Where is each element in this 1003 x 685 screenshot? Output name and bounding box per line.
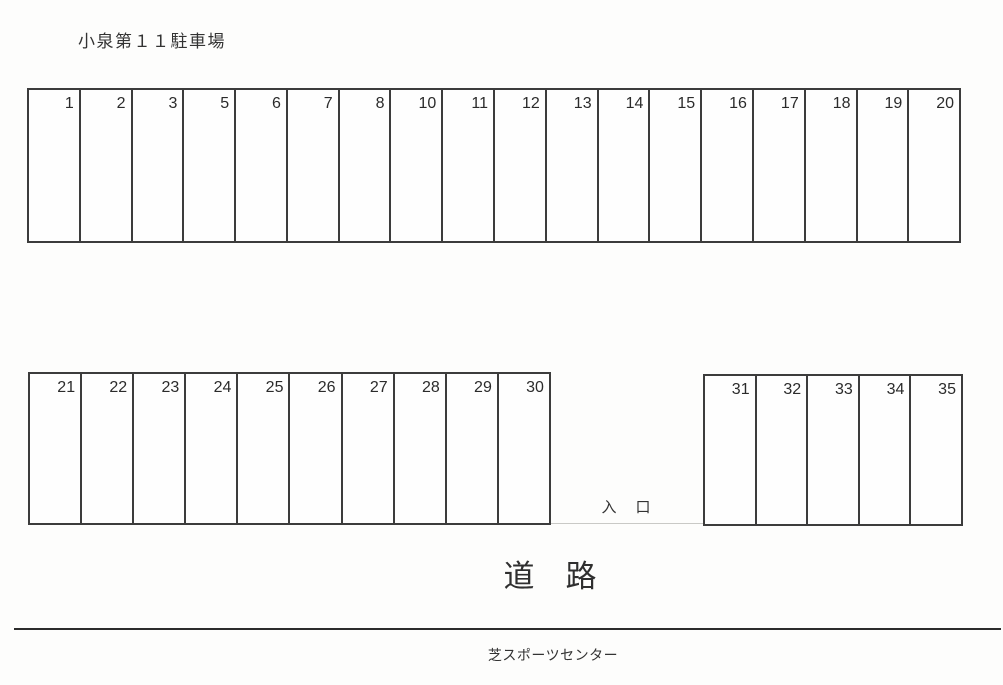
space-number: 13 xyxy=(574,94,592,113)
parking-space-14: 14 xyxy=(599,90,651,241)
parking-space-21: 21 xyxy=(30,374,82,523)
parking-space-32: 32 xyxy=(757,376,809,524)
parking-space-26: 26 xyxy=(290,374,342,523)
parking-space-2: 2 xyxy=(81,90,133,241)
parking-space-7: 7 xyxy=(288,90,340,241)
parking-space-24: 24 xyxy=(186,374,238,523)
space-number: 7 xyxy=(324,94,333,113)
parking-lot-diagram: 小泉第１１駐車場 12356781011121314151617181920 2… xyxy=(0,0,1003,685)
parking-space-11: 11 xyxy=(443,90,495,241)
parking-space-25: 25 xyxy=(238,374,290,523)
parking-space-12: 12 xyxy=(495,90,547,241)
parking-space-28: 28 xyxy=(395,374,447,523)
parking-space-35: 35 xyxy=(911,376,961,524)
space-number: 35 xyxy=(938,380,956,399)
space-number: 21 xyxy=(57,378,75,397)
parking-space-16: 16 xyxy=(702,90,754,241)
parking-space-17: 17 xyxy=(754,90,806,241)
space-number: 17 xyxy=(781,94,799,113)
space-number: 22 xyxy=(109,378,127,397)
space-number: 10 xyxy=(418,94,436,113)
space-number: 33 xyxy=(835,380,853,399)
road-boundary-line xyxy=(14,628,1001,630)
entrance-label: 入 口 xyxy=(551,496,703,517)
parking-space-13: 13 xyxy=(547,90,599,241)
lot-title: 小泉第１１駐車場 xyxy=(78,27,226,52)
entrance-threshold-line xyxy=(551,523,703,524)
parking-row-bottom-left: 21222324252627282930 xyxy=(28,372,551,525)
parking-space-29: 29 xyxy=(447,374,499,523)
space-number: 34 xyxy=(887,380,905,399)
space-number: 8 xyxy=(376,94,385,113)
space-number: 6 xyxy=(272,94,281,113)
space-number: 24 xyxy=(214,378,232,397)
parking-space-6: 6 xyxy=(236,90,288,241)
space-number: 28 xyxy=(422,378,440,397)
space-number: 26 xyxy=(318,378,336,397)
space-number: 1 xyxy=(65,94,74,113)
parking-row-bottom-right: 3132333435 xyxy=(703,374,963,526)
parking-space-19: 19 xyxy=(858,90,910,241)
space-number: 3 xyxy=(168,94,177,113)
space-number: 2 xyxy=(117,94,126,113)
parking-space-30: 30 xyxy=(499,374,549,523)
parking-space-27: 27 xyxy=(343,374,395,523)
parking-space-3: 3 xyxy=(133,90,185,241)
space-number: 29 xyxy=(474,378,492,397)
parking-space-33: 33 xyxy=(808,376,860,524)
space-number: 23 xyxy=(161,378,179,397)
parking-space-22: 22 xyxy=(82,374,134,523)
space-number: 30 xyxy=(526,378,544,397)
space-number: 31 xyxy=(732,380,750,399)
parking-space-1: 1 xyxy=(29,90,81,241)
parking-space-8: 8 xyxy=(340,90,392,241)
space-number: 15 xyxy=(677,94,695,113)
space-number: 20 xyxy=(936,94,954,113)
space-number: 27 xyxy=(370,378,388,397)
parking-space-10: 10 xyxy=(391,90,443,241)
space-number: 25 xyxy=(266,378,284,397)
space-number: 14 xyxy=(626,94,644,113)
parking-space-5: 5 xyxy=(184,90,236,241)
parking-space-20: 20 xyxy=(909,90,959,241)
road-label: 道 路 xyxy=(450,551,650,596)
parking-space-15: 15 xyxy=(650,90,702,241)
space-number: 11 xyxy=(471,94,488,113)
space-number: 5 xyxy=(220,94,229,113)
space-number: 12 xyxy=(522,94,540,113)
parking-space-23: 23 xyxy=(134,374,186,523)
parking-space-31: 31 xyxy=(705,376,757,524)
space-number: 19 xyxy=(884,94,902,113)
space-number: 16 xyxy=(729,94,747,113)
space-number: 32 xyxy=(783,380,801,399)
parking-space-18: 18 xyxy=(806,90,858,241)
parking-space-34: 34 xyxy=(860,376,912,524)
space-number: 18 xyxy=(833,94,851,113)
landmark-label: 芝スポーツセンター xyxy=(453,645,653,665)
parking-row-top: 12356781011121314151617181920 xyxy=(27,88,961,243)
